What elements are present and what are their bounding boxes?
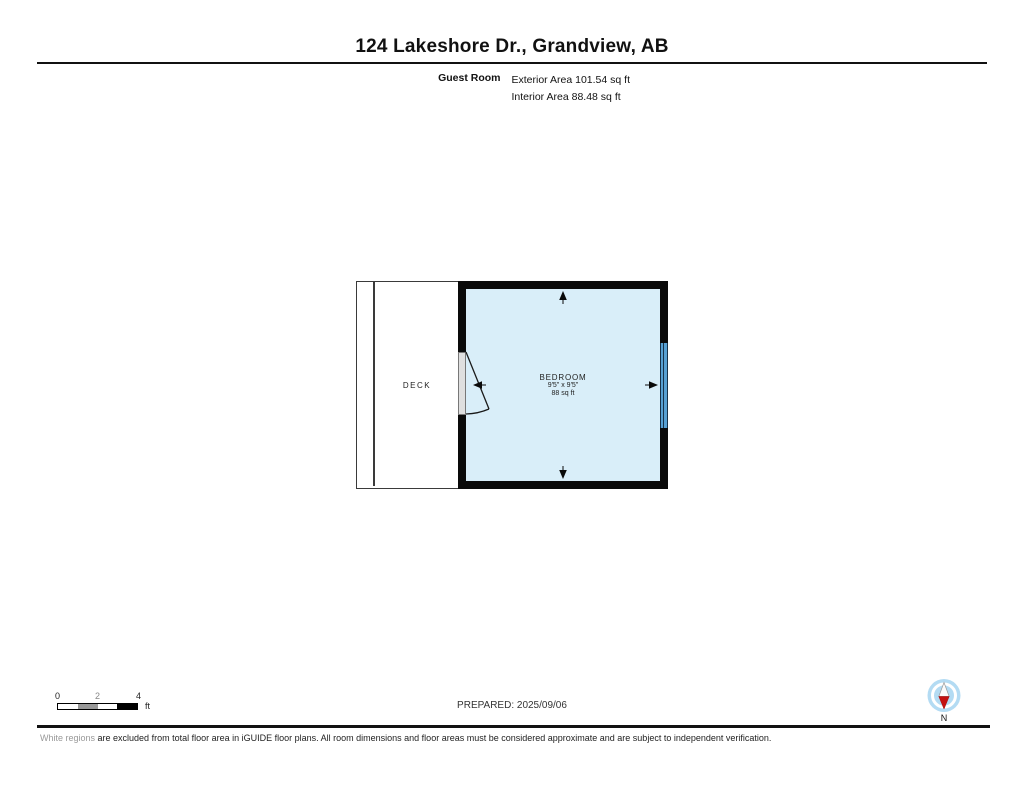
area-summary: Exterior Area 101.54 sq ft Interior Area… [512,72,1013,106]
bedroom-area-label: 88 sq ft [552,390,575,398]
bedroom-name-label: BEDROOM [540,373,587,382]
compass-north-label: N [925,713,963,723]
disclaimer-rest-text: are excluded from total floor area in iG… [95,733,771,743]
floor-plan: DECK [356,281,668,489]
exterior-area-text: Exterior Area 101.54 sq ft [512,72,1013,89]
interior-area-text: Interior Area 88.48 sq ft [512,89,1013,106]
compass-icon [925,678,963,716]
page-title: 124 Lakeshore Dr., Grandview, AB [0,36,1024,58]
room-name-label: Guest Room [12,72,501,84]
title-divider [37,62,987,64]
bedroom-label-block: BEDROOM 9'5" x 9'5" 88 sq ft [466,289,660,481]
disclaimer-lead-text: White regions [40,733,95,743]
floor-header: Guest Room Exterior Area 101.54 sq ft In… [0,72,1024,106]
prepared-date: PREPARED: 2025/09/06 [0,700,1024,711]
compass: N [925,678,963,726]
bedroom-dimensions-label: 9'5" x 9'5" [548,382,579,390]
page-root: 124 Lakeshore Dr., Grandview, AB Guest R… [0,0,1024,791]
footer-divider [37,725,990,728]
disclaimer-text: White regions are excluded from total fl… [40,733,1000,743]
